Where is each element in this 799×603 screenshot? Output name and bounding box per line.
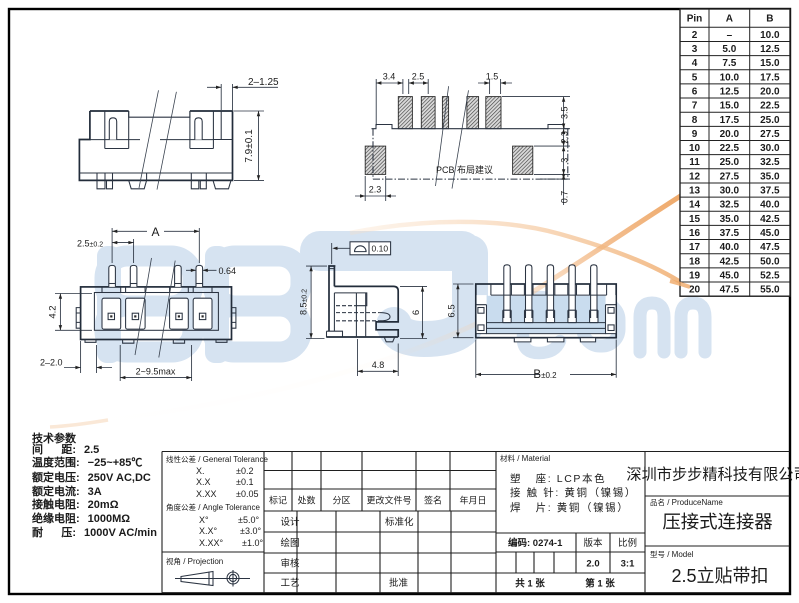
svg-text:25.0: 25.0 xyxy=(720,157,740,168)
svg-text:10.0: 10.0 xyxy=(720,72,740,83)
svg-text:3: 3 xyxy=(692,44,698,55)
svg-text:0.7: 0.7 xyxy=(560,191,570,204)
svg-text:22.5: 22.5 xyxy=(760,101,780,112)
svg-text:12.5: 12.5 xyxy=(720,87,740,98)
svg-text:40.0: 40.0 xyxy=(760,200,780,211)
svg-text:5: 5 xyxy=(692,72,698,83)
svg-text:X.: X. xyxy=(196,466,205,476)
svg-text:15.0: 15.0 xyxy=(760,58,780,69)
svg-text:0.10: 0.10 xyxy=(372,244,389,254)
svg-text:37.5: 37.5 xyxy=(720,228,740,239)
svg-text:额定电流:3A: 额定电流:3A xyxy=(32,484,102,498)
svg-text:45.0: 45.0 xyxy=(760,228,780,239)
svg-text:47.5: 47.5 xyxy=(720,285,740,296)
svg-text:2: 2 xyxy=(692,30,698,41)
svg-text:0.64: 0.64 xyxy=(219,266,237,276)
svg-text:2.5立贴带扣: 2.5立贴带扣 xyxy=(671,566,768,586)
svg-text:A: A xyxy=(726,14,733,25)
svg-text:±0.2: ±0.2 xyxy=(236,466,253,476)
svg-text:年月日: 年月日 xyxy=(459,495,486,506)
svg-text:10.0: 10.0 xyxy=(760,30,780,41)
svg-text:15.0: 15.0 xyxy=(720,101,740,112)
svg-text:2–2.0: 2–2.0 xyxy=(40,357,63,367)
svg-text:X.XX: X.XX xyxy=(196,489,217,499)
svg-text:比例: 比例 xyxy=(618,537,637,549)
svg-text:6: 6 xyxy=(411,310,422,315)
svg-text:品名 / ProduceName: 品名 / ProduceName xyxy=(650,497,723,507)
svg-text:3.4: 3.4 xyxy=(383,72,396,82)
svg-text:52.5: 52.5 xyxy=(760,270,780,281)
svg-text:35.0: 35.0 xyxy=(720,214,740,225)
svg-text:分区: 分区 xyxy=(332,496,350,506)
svg-text:工艺: 工艺 xyxy=(281,578,300,589)
svg-text:标记: 标记 xyxy=(269,495,287,506)
svg-text:17.5: 17.5 xyxy=(720,115,740,126)
svg-text:Pin: Pin xyxy=(687,14,703,25)
svg-text:30.0: 30.0 xyxy=(760,143,780,154)
svg-text:–: – xyxy=(727,30,733,41)
svg-text:1.5: 1.5 xyxy=(486,72,499,82)
svg-text:20.0: 20.0 xyxy=(760,87,780,98)
svg-text:42.5: 42.5 xyxy=(720,256,740,267)
svg-text:材料 / Material: 材料 / Material xyxy=(500,453,550,463)
svg-text:塑 座: LCP本色: 塑 座: LCP本色 xyxy=(510,472,606,485)
svg-text:型号 / Model: 型号 / Model xyxy=(650,550,694,559)
svg-text:8: 8 xyxy=(692,115,698,126)
svg-text:27.5: 27.5 xyxy=(760,129,780,140)
svg-text:深圳市步步精科技有限公司: 深圳市步步精科技有限公司 xyxy=(626,467,799,484)
svg-text:17: 17 xyxy=(689,242,701,253)
svg-text:焊 片: 黄铜（镍锡）: 焊 片: 黄铜（镍锡） xyxy=(510,501,629,514)
svg-text:11: 11 xyxy=(689,157,700,168)
svg-text:耐 压:1000V AC/min: 耐 压:1000V AC/min xyxy=(32,525,157,539)
svg-text:第 1 张: 第 1 张 xyxy=(585,578,615,590)
svg-text:19: 19 xyxy=(689,270,701,281)
svg-text:16: 16 xyxy=(689,228,701,239)
svg-text:17.5: 17.5 xyxy=(760,72,780,83)
svg-text:X.X: X.X xyxy=(196,477,211,487)
svg-text:40.0: 40.0 xyxy=(720,242,740,253)
svg-text:55.0: 55.0 xyxy=(760,285,780,296)
svg-text:3:1: 3:1 xyxy=(621,559,635,570)
svg-text:2–1.25: 2–1.25 xyxy=(248,77,279,88)
svg-text:线性公差 / General Tolerance: 线性公差 / General Tolerance xyxy=(166,454,268,464)
svg-text:27.5: 27.5 xyxy=(720,171,740,182)
svg-text:6.5: 6.5 xyxy=(447,304,458,317)
svg-text:处数: 处数 xyxy=(297,495,315,506)
svg-text:45.0: 45.0 xyxy=(720,270,740,281)
svg-text:温度范围:−25~+85℃: 温度范围:−25~+85℃ xyxy=(32,455,142,469)
svg-text:7.5: 7.5 xyxy=(722,58,736,69)
svg-text:设计: 设计 xyxy=(281,516,301,528)
svg-text:6: 6 xyxy=(692,87,698,98)
svg-text:2.5: 2.5 xyxy=(412,72,425,82)
svg-text:50.0: 50.0 xyxy=(760,256,780,267)
svg-text:签名: 签名 xyxy=(424,495,442,506)
svg-text:额定电压:250V AC,DC: 额定电压:250V AC,DC xyxy=(32,470,151,484)
svg-text:37.5: 37.5 xyxy=(760,186,780,197)
svg-text:5.0: 5.0 xyxy=(722,44,736,55)
svg-text:版本: 版本 xyxy=(583,537,603,549)
svg-text:30.0: 30.0 xyxy=(720,186,740,197)
svg-text:7: 7 xyxy=(692,101,698,112)
svg-text:角度公差 / Angle Tolerance: 角度公差 / Angle Tolerance xyxy=(166,502,260,512)
svg-text:2.0: 2.0 xyxy=(586,559,599,570)
svg-text:±0.1: ±0.1 xyxy=(236,477,253,487)
svg-text:7.9±0.1: 7.9±0.1 xyxy=(244,129,255,163)
svg-text:2.3: 2.3 xyxy=(560,131,570,144)
svg-text:技术参数: 技术参数 xyxy=(32,431,77,445)
svg-text:编码: 0274-1: 编码: 0274-1 xyxy=(508,537,563,549)
svg-text:绘图: 绘图 xyxy=(281,537,300,549)
svg-text:更改文件号: 更改文件号 xyxy=(366,495,411,506)
svg-text:审核: 审核 xyxy=(281,558,301,570)
svg-text:4.8: 4.8 xyxy=(372,360,385,370)
svg-text:18: 18 xyxy=(689,256,701,267)
svg-text:42.5: 42.5 xyxy=(760,214,780,225)
svg-text:15: 15 xyxy=(689,214,701,225)
svg-text:35.0: 35.0 xyxy=(760,171,780,182)
svg-text:20.0: 20.0 xyxy=(720,129,740,140)
svg-text:X°: X° xyxy=(199,515,209,525)
svg-text:32.5: 32.5 xyxy=(760,157,780,168)
svg-text:12.5: 12.5 xyxy=(760,44,780,55)
svg-text:9: 9 xyxy=(692,129,698,140)
svg-text:13: 13 xyxy=(689,186,701,197)
svg-text:压接式连接器: 压接式连接器 xyxy=(662,511,772,532)
svg-text:25.0: 25.0 xyxy=(760,115,780,126)
svg-text:3: 3 xyxy=(560,158,570,163)
svg-text:10: 10 xyxy=(689,143,701,154)
svg-text:47.5: 47.5 xyxy=(760,242,780,253)
svg-text:接 触 针: 黄铜（镍锡）: 接 触 针: 黄铜（镍锡） xyxy=(510,486,637,499)
svg-text:4: 4 xyxy=(692,58,698,69)
svg-text:±1.0°: ±1.0° xyxy=(242,538,263,548)
svg-text:4.2: 4.2 xyxy=(47,305,58,318)
svg-text:标准化: 标准化 xyxy=(385,516,414,528)
svg-text:接触电阻:20mΩ: 接触电阻:20mΩ xyxy=(32,497,119,511)
svg-text:间 距:2.5: 间 距:2.5 xyxy=(32,443,99,456)
svg-text:±5.0°: ±5.0° xyxy=(238,515,259,525)
svg-text:22.5: 22.5 xyxy=(720,143,740,154)
svg-text:±3.0°: ±3.0° xyxy=(240,526,261,536)
svg-text:PCB 布局建议: PCB 布局建议 xyxy=(436,164,493,175)
svg-text:14: 14 xyxy=(689,200,701,211)
svg-text:32.5: 32.5 xyxy=(720,200,740,211)
svg-text:A: A xyxy=(151,225,159,239)
svg-text:视角 / Projection: 视角 / Projection xyxy=(166,556,223,566)
svg-text:2~9.5max: 2~9.5max xyxy=(136,366,176,376)
svg-text:B: B xyxy=(766,14,773,25)
svg-text:20: 20 xyxy=(689,285,701,296)
svg-text:3.5: 3.5 xyxy=(560,106,570,119)
svg-text:±0.05: ±0.05 xyxy=(236,489,258,499)
svg-text:B±0.2: B±0.2 xyxy=(533,369,557,381)
svg-text:共 1 张: 共 1 张 xyxy=(515,578,545,590)
svg-text:批准: 批准 xyxy=(389,577,409,589)
svg-text:2.3: 2.3 xyxy=(369,185,382,195)
svg-text:12: 12 xyxy=(689,171,701,182)
svg-text:X.X°: X.X° xyxy=(199,526,218,536)
svg-text:X.XX°: X.XX° xyxy=(199,538,224,548)
